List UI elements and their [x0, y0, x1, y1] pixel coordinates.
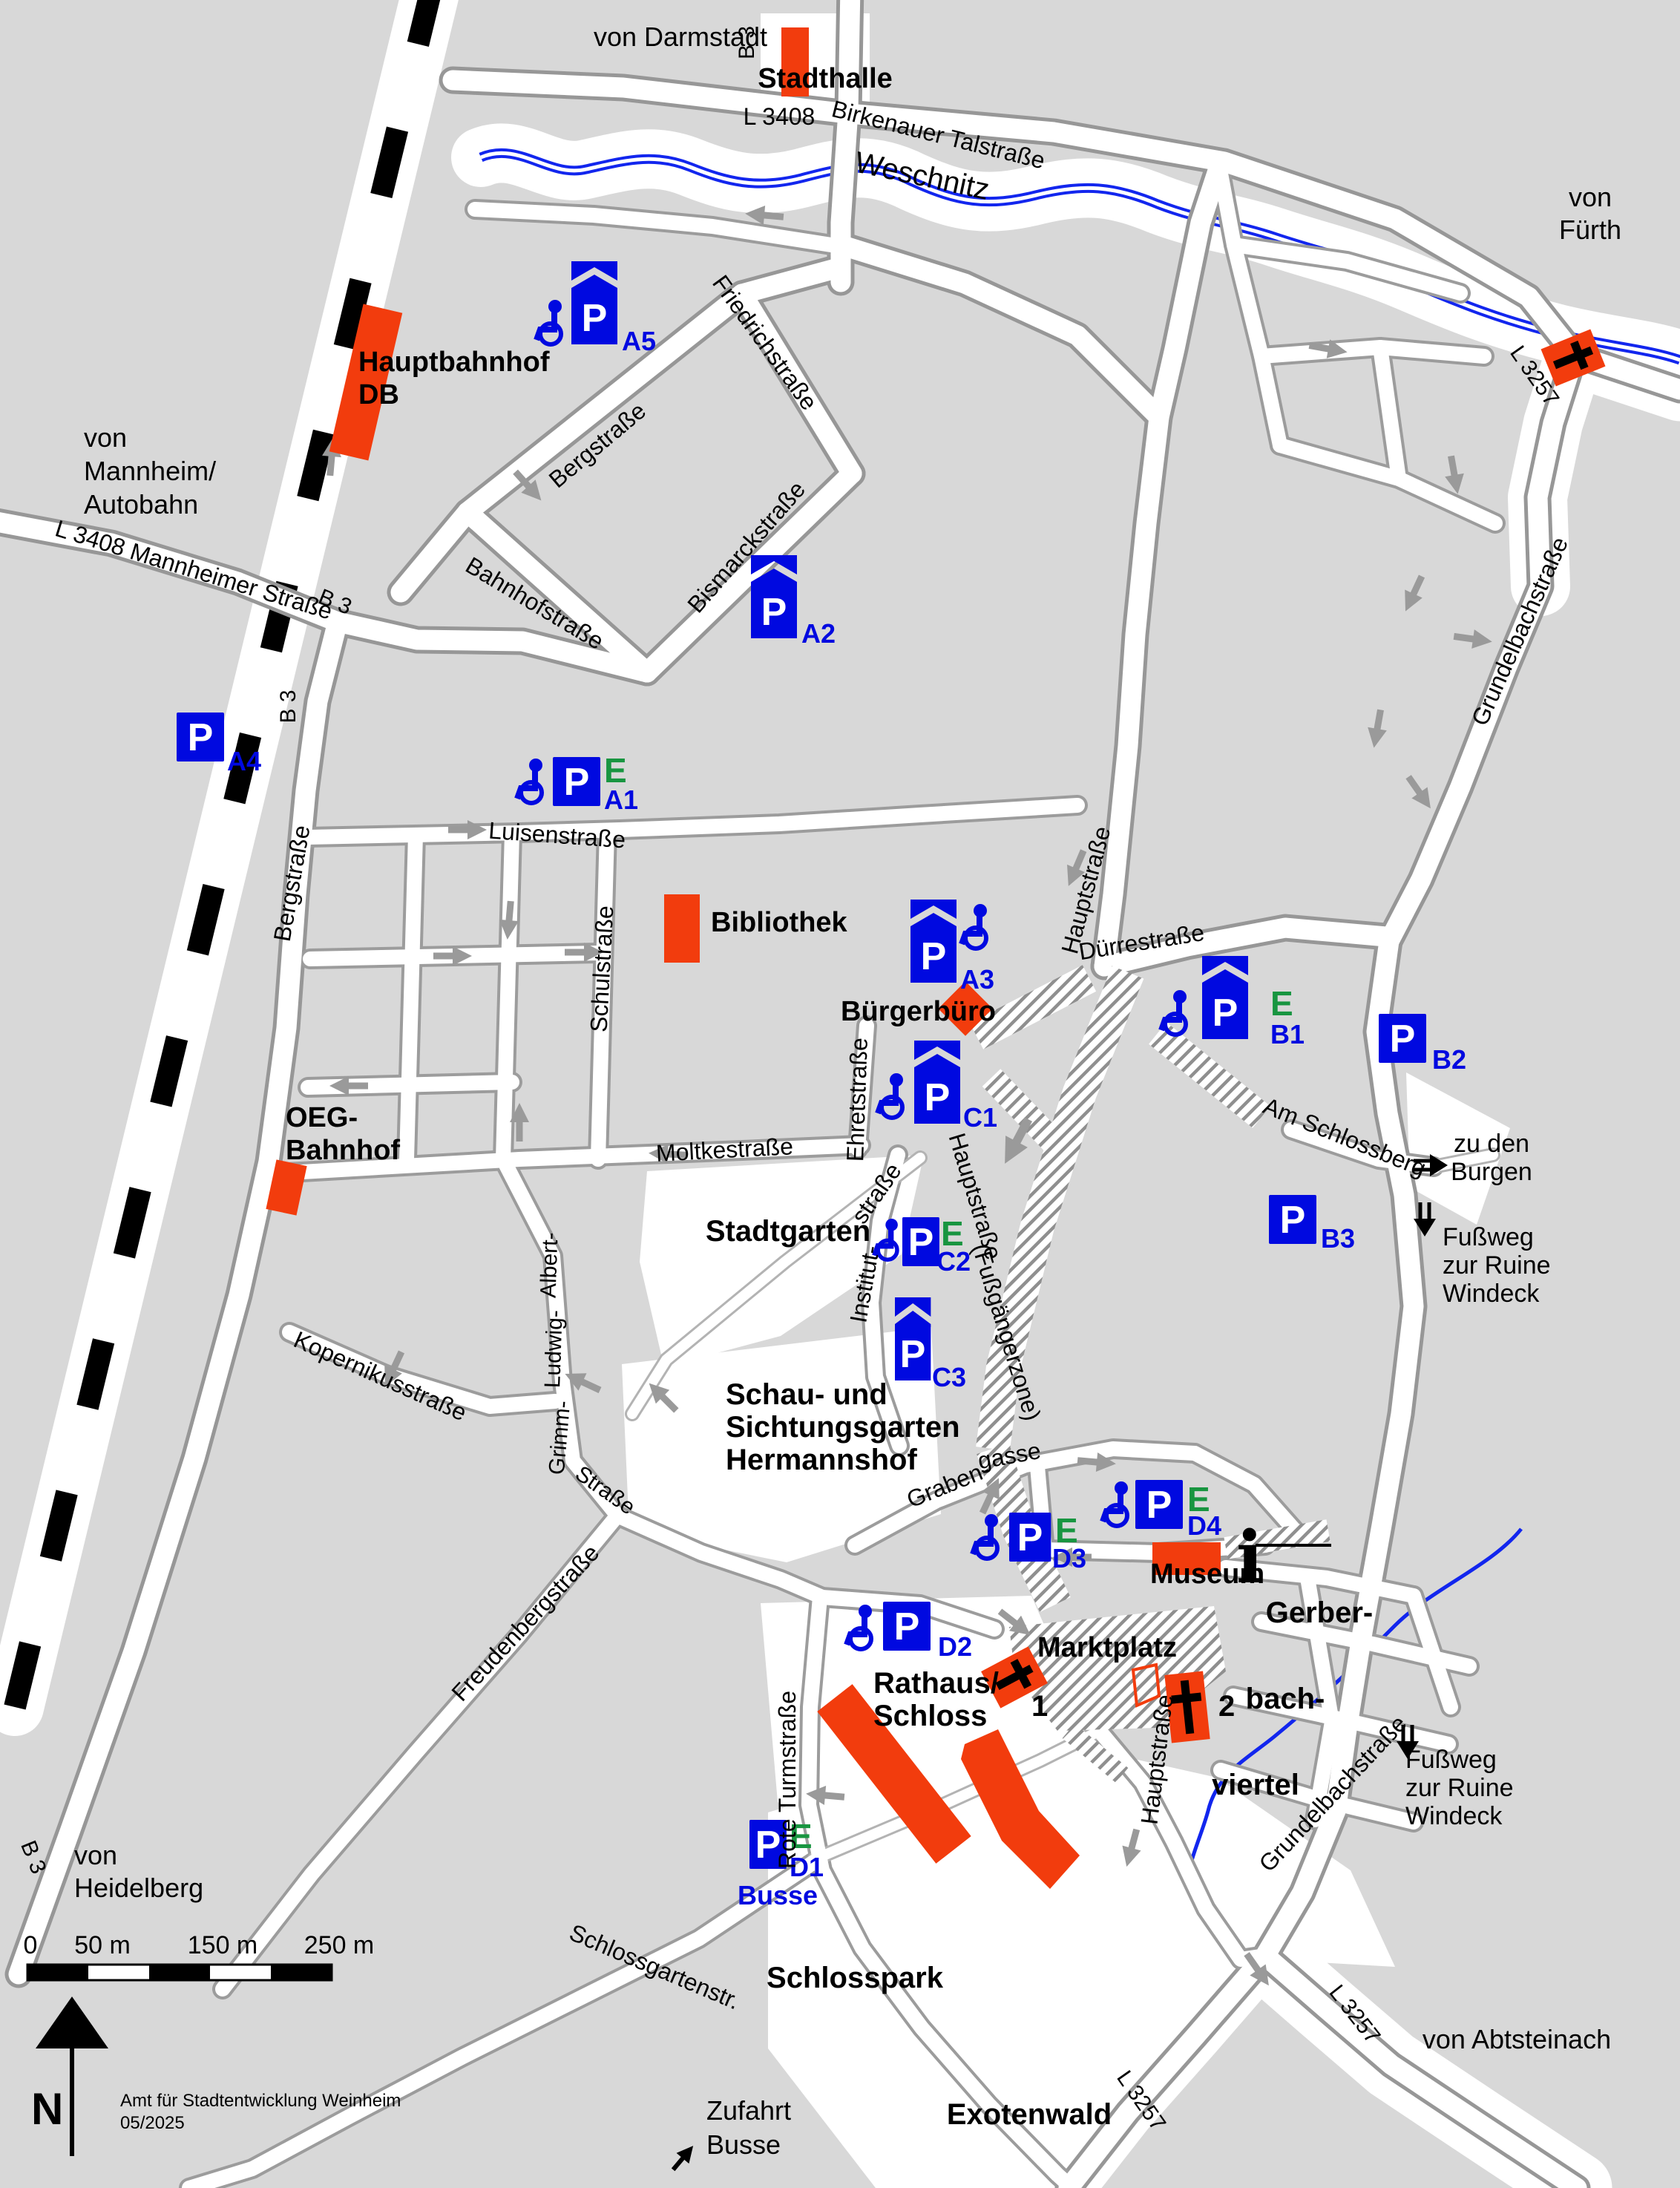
landmark-label: OEG- — [286, 1102, 358, 1133]
landmark-label: DB — [358, 379, 399, 410]
svg-text:P: P — [761, 591, 787, 634]
busse-note: Busse — [738, 1880, 818, 1910]
svg-text:50 m: 50 m — [74, 1931, 131, 1959]
landmark-label: Bahnhof — [286, 1135, 400, 1166]
church-number: 2 — [1218, 1690, 1235, 1723]
svg-text:A3: A3 — [960, 964, 994, 995]
svg-text:B2: B2 — [1432, 1044, 1466, 1075]
svg-text:B3: B3 — [1321, 1223, 1355, 1254]
area-label: viertel — [1212, 1769, 1299, 1801]
svg-text:P: P — [1017, 1516, 1043, 1559]
church-number: 1 — [1031, 1690, 1048, 1723]
street-label: Ludwig- — [540, 1310, 568, 1389]
svg-text:D2: D2 — [938, 1631, 972, 1662]
svg-text:P: P — [894, 1605, 920, 1648]
svg-text:C2: C2 — [936, 1246, 971, 1277]
route-label: B 3 — [276, 690, 301, 723]
direction-label: Fürth — [1559, 214, 1621, 245]
direction-label: Fußweg — [1405, 1746, 1497, 1774]
area-label: Gerber- — [1266, 1596, 1374, 1629]
direction-label: von — [1569, 182, 1612, 212]
area-label: Hermannshof — [726, 1444, 917, 1476]
area-label: bach- — [1246, 1683, 1325, 1715]
svg-text:P: P — [900, 1333, 926, 1376]
svg-text:05/2025: 05/2025 — [120, 2113, 185, 2133]
svg-text:D3: D3 — [1052, 1543, 1086, 1573]
landmark-label: Hauptbahnhof — [358, 347, 550, 378]
direction-label: Fußweg — [1443, 1223, 1534, 1251]
direction-label: Busse — [706, 2129, 781, 2160]
svg-text:A4: A4 — [227, 746, 261, 776]
svg-text:250 m: 250 m — [304, 1931, 375, 1959]
area-label: Sichtungsgarten — [726, 1411, 960, 1444]
svg-text:P: P — [1213, 992, 1238, 1035]
svg-text:0: 0 — [24, 1931, 38, 1959]
landmark-label: Stadthalle — [758, 63, 893, 94]
svg-text:P: P — [925, 1076, 951, 1119]
direction-label: Windeck — [1405, 1802, 1503, 1830]
route-label: B 3 — [735, 26, 759, 59]
direction-label: Windeck — [1443, 1280, 1540, 1308]
bibliothek-building — [664, 894, 700, 963]
svg-text:P: P — [582, 297, 608, 340]
direction-label: zur Ruine — [1405, 1774, 1514, 1802]
svg-text:150 m: 150 m — [188, 1931, 258, 1959]
street-label: Albert- — [536, 1232, 562, 1298]
svg-text:D4: D4 — [1187, 1510, 1221, 1541]
scale-bar: 0 50 m 150 m 250 m — [24, 1931, 375, 1980]
street-label: Rote Turmstraße — [774, 1691, 801, 1869]
direction-label: Zufahrt — [706, 2095, 791, 2126]
landmark-label: Bürgerbüro — [841, 996, 996, 1027]
landmark-label: Museum — [1150, 1559, 1264, 1590]
landmark-label: Rathaus/ — [873, 1667, 999, 1700]
city-parking-map-weinheim: i P E A1 P A2 P A3 P A4 — [0, 0, 1680, 2188]
svg-text:Amt für Stadtentwicklung Weinh: Amt für Stadtentwicklung Weinheim — [120, 2091, 401, 2111]
direction-label: Heidelberg — [74, 1873, 203, 1903]
svg-text:P: P — [1390, 1018, 1416, 1061]
svg-text:A5: A5 — [622, 326, 656, 356]
svg-text:B1: B1 — [1270, 1019, 1305, 1049]
svg-text:P: P — [188, 716, 214, 759]
svg-text:A2: A2 — [801, 618, 836, 649]
street-label: Ehretstraße — [841, 1037, 873, 1162]
direction-label: zu den — [1454, 1130, 1529, 1158]
svg-text:N: N — [31, 2084, 63, 2134]
svg-text:P: P — [908, 1221, 934, 1264]
map-background — [0, 0, 1680, 2188]
svg-text:C1: C1 — [963, 1102, 997, 1133]
svg-text:P: P — [564, 761, 590, 804]
area-label: Stadtgarten — [706, 1215, 870, 1248]
svg-text:P: P — [921, 935, 947, 978]
landmark-label: Bibliothek — [711, 907, 848, 938]
direction-label: zur Ruine — [1443, 1251, 1551, 1280]
svg-text:A1: A1 — [604, 785, 638, 815]
direction-label: Autobahn — [84, 489, 198, 520]
direction-label: von — [74, 1840, 117, 1870]
svg-text:P: P — [1280, 1199, 1306, 1242]
direction-label: von Abtsteinach — [1423, 2024, 1611, 2054]
svg-text:P: P — [1146, 1484, 1172, 1527]
direction-label: Burgen — [1451, 1158, 1532, 1186]
area-label: Marktplatz — [1037, 1632, 1177, 1663]
charging-e-icon: E — [1270, 984, 1293, 1023]
svg-text:C3: C3 — [932, 1362, 966, 1392]
route-label: L 3408 — [744, 103, 816, 130]
direction-label: von — [84, 422, 127, 453]
area-label: Schlosspark — [767, 1962, 944, 1994]
direction-label: Mannheim/ — [84, 456, 216, 486]
area-label: Exotenwald — [947, 2098, 1112, 2131]
area-label: Schau- und — [726, 1378, 887, 1411]
landmark-label: Schloss — [873, 1700, 987, 1732]
